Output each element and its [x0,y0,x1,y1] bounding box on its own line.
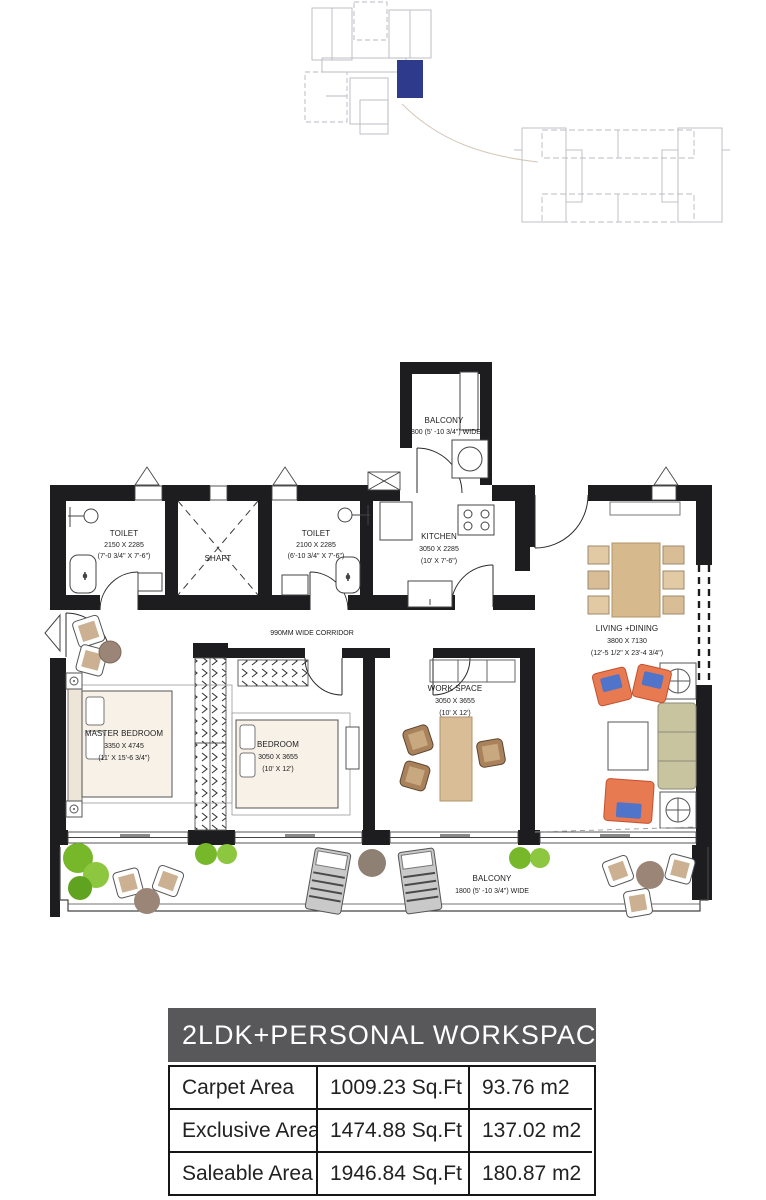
svg-text:ϕ: ϕ [346,574,350,581]
area-summary-table: 2LDK+PERSONAL WORKSPACE (C2) Carpet Area… [168,1008,596,1196]
area-sqm: 180.87 m2 [470,1153,592,1194]
area-rows: Carpet Area 1009.23 Sq.Ft 93.76 m2 Exclu… [168,1065,596,1196]
label-kitchen: KITCHEN 3050 X 2285 (10' X 7'-6") [419,532,459,565]
svg-text:1800 (5' -10 3/4") WIDE: 1800 (5' -10 3/4") WIDE [407,429,481,436]
area-label: Exclusive Area [170,1110,318,1153]
label-bedroom: BEDROOM 3050 X 3655 (10' X 12') [257,740,299,773]
toilet2-fixtures: ϕ [282,505,370,595]
label-balcony-bottom: BALCONY 1800 (5' -10 3/4") WIDE [455,874,529,895]
table-row: Exclusive Area 1474.88 Sq.Ft 137.02 m2 [170,1110,594,1153]
svg-text:(10' X 12'): (10' X 12') [439,710,470,717]
svg-text:3800 X 7130: 3800 X 7130 [607,638,647,645]
shaft-cross [178,501,258,595]
dining-set [588,502,684,617]
key-plan-floorplate [514,128,730,222]
svg-text:MASTER BEDROOM: MASTER BEDROOM [85,729,164,738]
bedroom-bed [232,713,359,815]
svg-text:3050 X 3655: 3050 X 3655 [258,754,298,761]
balcony-left-seating [112,864,185,914]
svg-text:3350 X 4745: 3350 X 4745 [104,743,144,750]
unit-type-title: 2LDK+PERSONAL WORKSPACE (C2) [168,1008,596,1062]
svg-text:(6'-10 3/4" X 7'-6"): (6'-10 3/4" X 7'-6") [288,553,345,560]
svg-text:(10' X 12'): (10' X 12') [262,766,293,773]
svg-text:(12'-5 1/2" X 23'-4 3/4"): (12'-5 1/2" X 23'-4 3/4") [591,650,663,657]
area-label: Carpet Area [170,1067,318,1110]
balcony-right-seating [601,853,696,918]
svg-text:990MM WIDE CORRIDOR: 990MM WIDE CORRIDOR [270,630,354,637]
living-side-window [699,565,709,685]
foyer-seating [72,614,121,677]
svg-text:(11' X 15'-6 3/4"): (11' X 15'-6 3/4") [98,755,149,762]
svg-text:ϕ: ϕ [83,573,87,580]
svg-text:BALCONY: BALCONY [425,416,464,425]
label-workspace: WORK SPACE 3050 X 3655 (10' X 12') [428,684,483,717]
svg-text:BEDROOM: BEDROOM [257,740,299,749]
area-sqm: 137.02 m2 [470,1110,592,1153]
svg-text:2150 X 2285: 2150 X 2285 [104,542,144,549]
balcony-loungers [305,847,442,914]
svg-text:TOILET: TOILET [302,529,330,538]
area-sqft: 1474.88 Sq.Ft [318,1110,470,1153]
highlighted-unit [397,60,423,98]
area-sqm: 93.76 m2 [470,1067,592,1110]
svg-text:2100 X 2285: 2100 X 2285 [296,542,336,549]
workspace-furniture [399,717,506,801]
svg-text:3050 X 3655: 3050 X 3655 [435,698,475,705]
svg-text:LIVING +DINING: LIVING +DINING [596,624,659,633]
svg-text:TOILET: TOILET [110,529,138,538]
svg-text:WORK SPACE: WORK SPACE [428,684,483,693]
area-sqft: 1946.84 Sq.Ft [318,1153,470,1194]
area-sqft: 1009.23 Sq.Ft [318,1067,470,1110]
kitchen-fixtures [380,502,494,607]
svg-text:1800 (5' -10 3/4") WIDE: 1800 (5' -10 3/4") WIDE [455,888,529,895]
svg-text:KITCHEN: KITCHEN [421,532,457,541]
key-plan-connector-line [402,104,538,162]
unit-floor-plan: ϕ ϕ [40,355,730,940]
living-furniture [592,663,696,828]
key-plans [290,0,766,250]
label-corridor: 990MM WIDE CORRIDOR [270,630,354,637]
table-row: Saleable Area 1946.84 Sq.Ft 180.87 m2 [170,1153,594,1194]
label-living: LIVING +DINING 3800 X 7130 (12'-5 1/2" X… [591,624,663,657]
label-toilet1: TOILET 2150 X 2285 (7'-0 3/4" X 7'-6") [98,529,151,560]
floorplan-sheet: ϕ ϕ [0,0,766,1200]
label-toilet2: TOILET 2100 X 2285 (6'-10 3/4" X 7'-6") [288,529,345,560]
area-label: Saleable Area [170,1153,318,1194]
label-shaft: SHAFT [205,554,232,563]
table-row: Carpet Area 1009.23 Sq.Ft 93.76 m2 [170,1067,594,1110]
svg-text:(10' X 7'-6"): (10' X 7'-6") [421,558,457,565]
svg-text:SHAFT: SHAFT [205,554,232,563]
svg-text:3050 X 2285: 3050 X 2285 [419,546,459,553]
svg-text:(7'-0 3/4" X 7'-6"): (7'-0 3/4" X 7'-6") [98,553,151,560]
svg-text:BALCONY: BALCONY [473,874,512,883]
